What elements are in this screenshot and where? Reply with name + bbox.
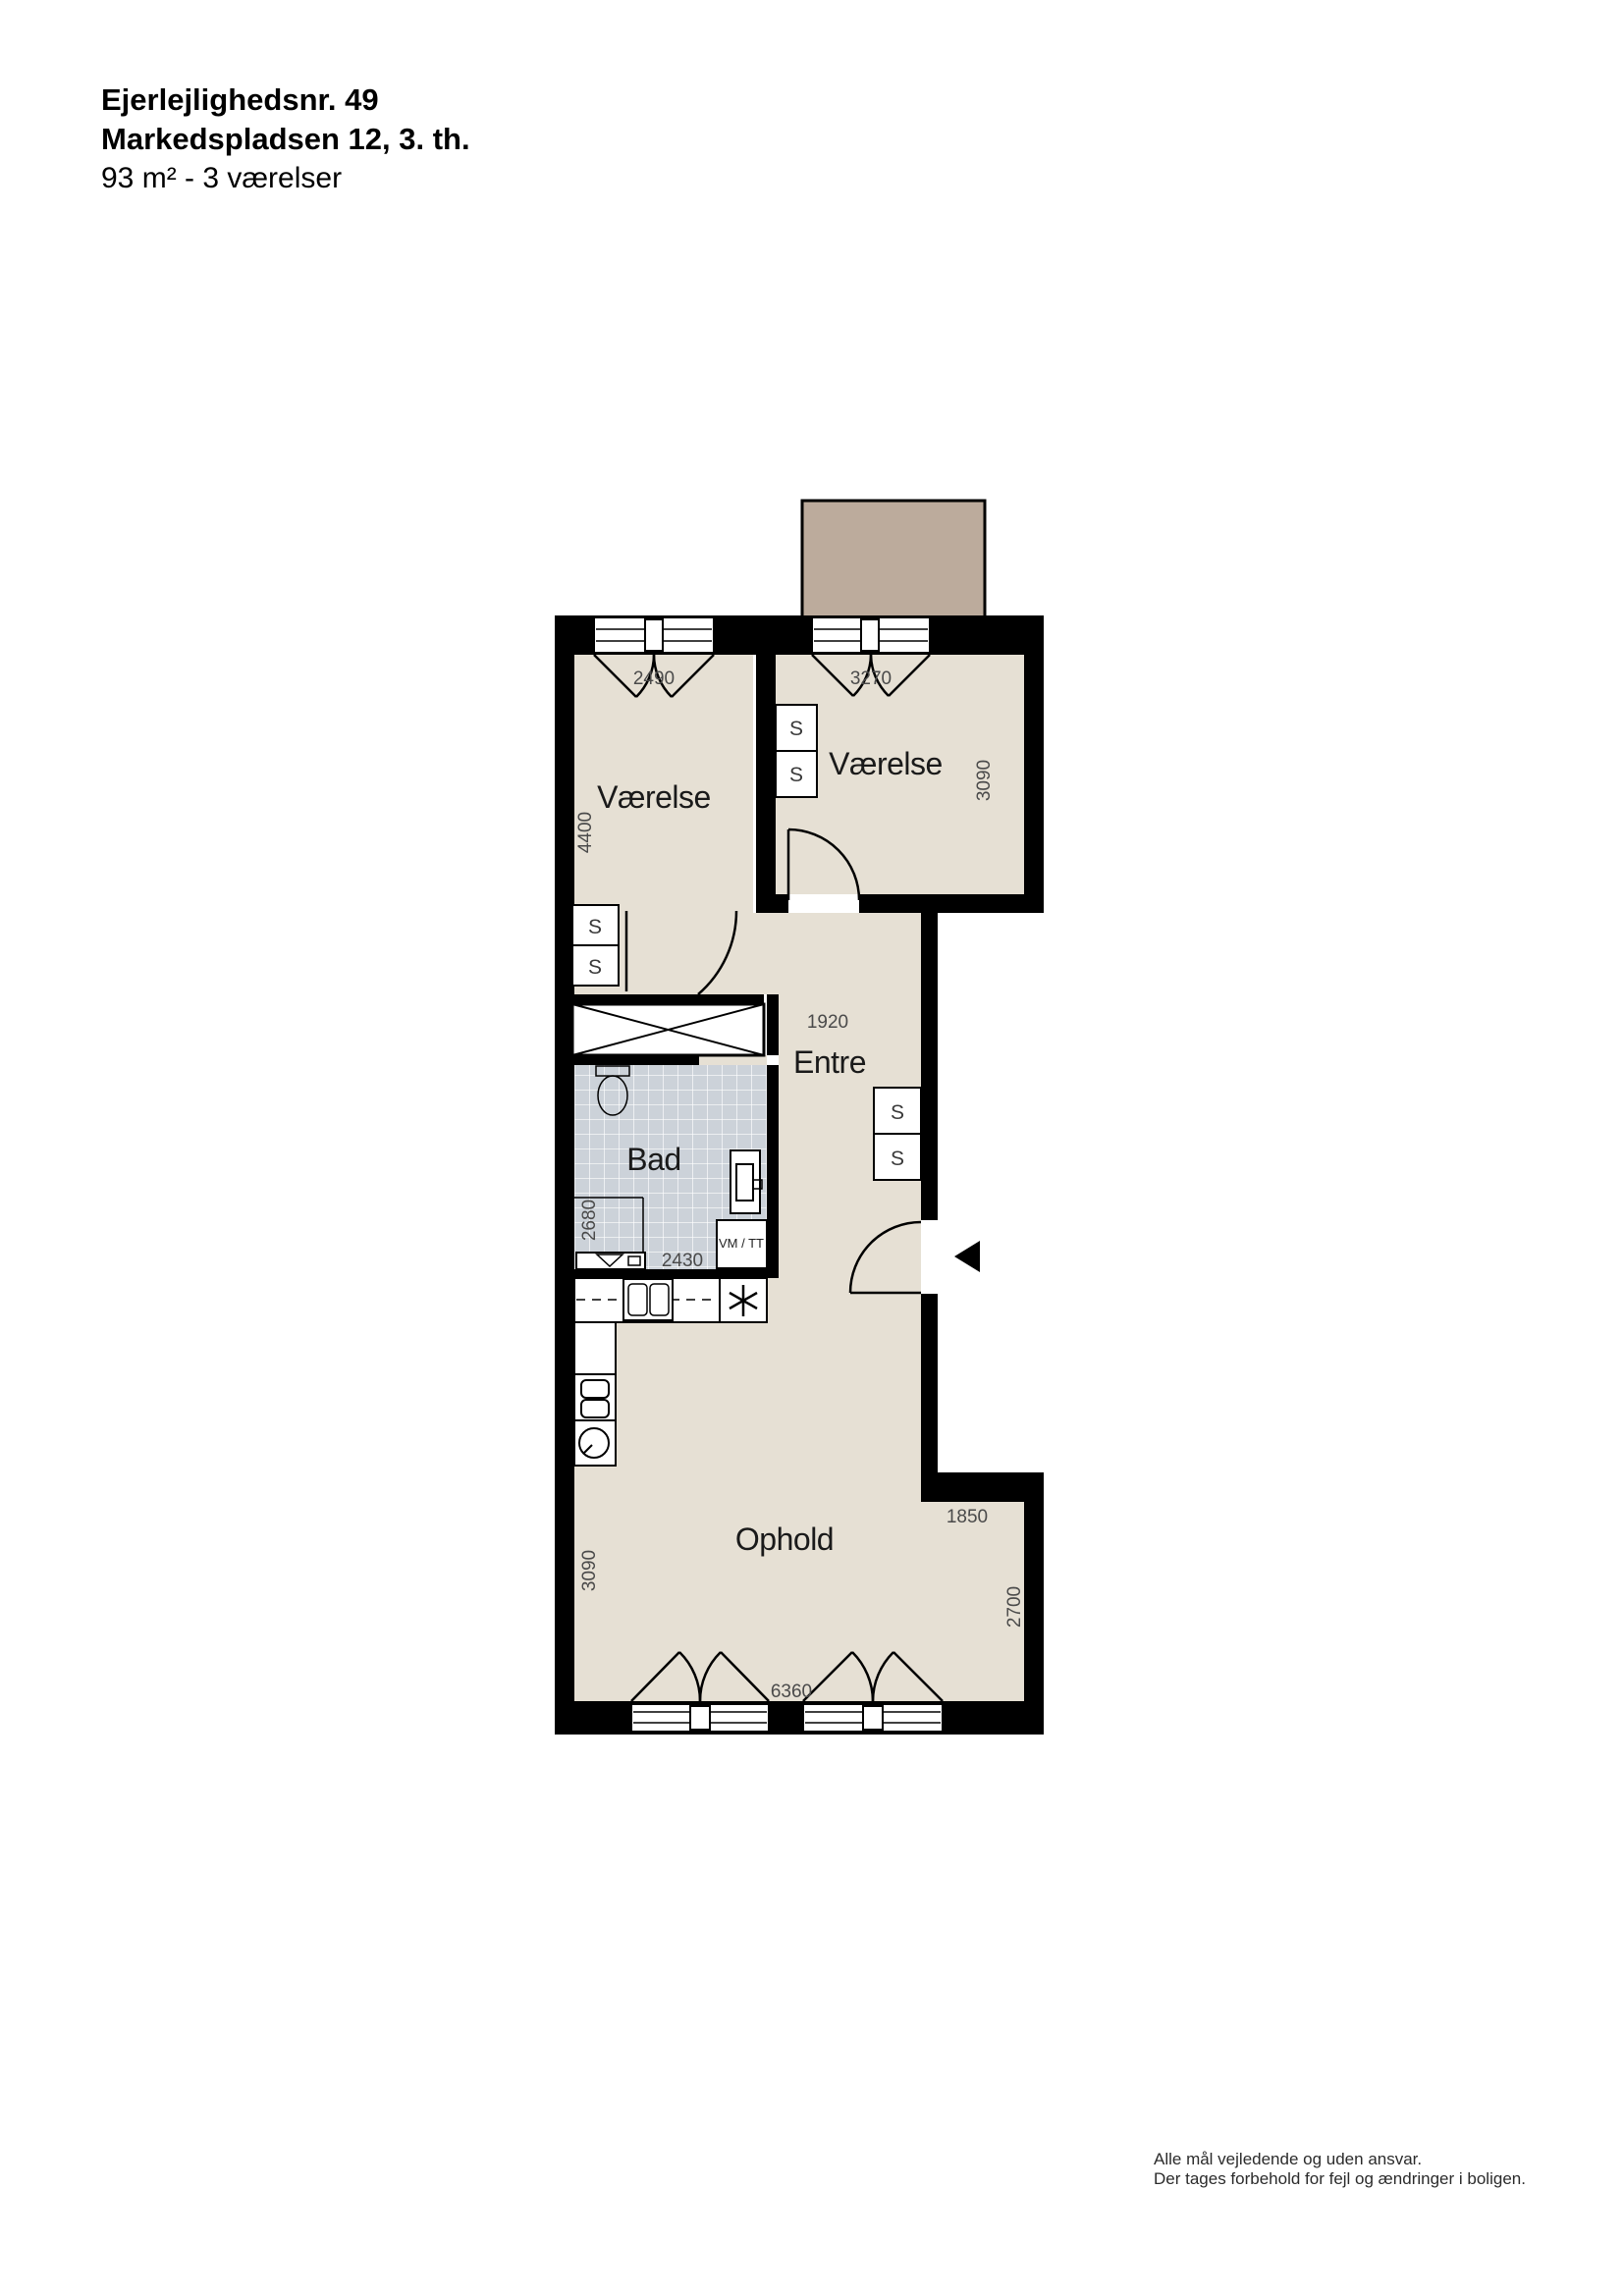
dim-ophold-alcove-width: 1850 (947, 1507, 988, 1527)
room-label-ophold: Ophold (735, 1522, 834, 1557)
closet-label: S (891, 1148, 904, 1170)
dim-vaerelse2-width: 3270 (850, 668, 892, 689)
entrance-arrow-icon (954, 1241, 980, 1272)
wall-bath-right (767, 1065, 779, 1278)
dim-bad-width: 2430 (662, 1251, 703, 1271)
closet-label: S (789, 764, 803, 786)
kitchen-sink-icon (623, 1279, 673, 1320)
room-label-vaerelse1: Værelse (597, 779, 711, 815)
room-label-bad: Bad (626, 1142, 680, 1177)
wall-right-upper (1024, 615, 1044, 913)
balcony (802, 501, 985, 618)
wall-between-bedrooms (756, 655, 776, 913)
dim-vaerelse2-depth: 3090 (974, 760, 995, 801)
disclaimer-line1: Alle mål vejledende og uden ansvar. (1154, 2150, 1526, 2169)
wall-vaerelse2-bottom-left (756, 894, 788, 913)
wall-wardrobe-right (767, 994, 779, 1055)
washer-dryer-box: VM / TT (717, 1220, 767, 1268)
washer-dryer-label: VM / TT (719, 1236, 764, 1251)
dim-ophold-alcove-depth: 2700 (1004, 1586, 1025, 1628)
wall-vaerelse2-bottom-right (859, 894, 1044, 913)
bath-vanity-icon (576, 1253, 645, 1269)
dim-ophold-depth: 3090 (579, 1550, 600, 1591)
closet-label: S (789, 718, 803, 740)
dim-entre-width: 1920 (807, 1012, 848, 1033)
dim-vaerelse1-depth: 4400 (575, 812, 596, 853)
dim-ophold-width: 6360 (771, 1682, 812, 1702)
disclaimer-line2: Der tages forbehold for fejl og ændringe… (1154, 2169, 1526, 2189)
stove-icon (720, 1278, 767, 1322)
wall-left (555, 615, 574, 1735)
closet-label: S (588, 956, 602, 979)
wall-bottom (555, 1701, 1044, 1735)
dim-bad-depth: 2680 (579, 1200, 600, 1241)
dim-vaerelse1-width: 2490 (633, 668, 675, 689)
window-vaerelse2 (812, 617, 930, 653)
wall-entre-right-upper (921, 913, 938, 1220)
window-ophold-right (803, 1704, 943, 1732)
floorplan-page: Ejerlejlighedsnr. 49 Markedspladsen 12, … (0, 0, 1623, 2296)
fridge-icon (574, 1374, 616, 1420)
footer-disclaimer: Alle mål vejledende og uden ansvar. Der … (1154, 2150, 1526, 2189)
room-label-vaerelse2: Værelse (829, 746, 943, 781)
wall-right-lower (1024, 1472, 1044, 1735)
wardrobe-crossbox (572, 1004, 764, 1055)
window-ophold-left (631, 1704, 769, 1732)
window-vaerelse1 (594, 617, 714, 653)
floor-plan-drawing: VM / TT (0, 0, 1623, 2296)
corridor-floor (619, 913, 921, 994)
room-label-entre: Entre (793, 1044, 866, 1080)
washbasin-icon (730, 1150, 762, 1213)
wall-entre-right-lower (921, 1294, 938, 1502)
closet-label: S (891, 1101, 904, 1124)
closet-label: S (588, 916, 602, 938)
